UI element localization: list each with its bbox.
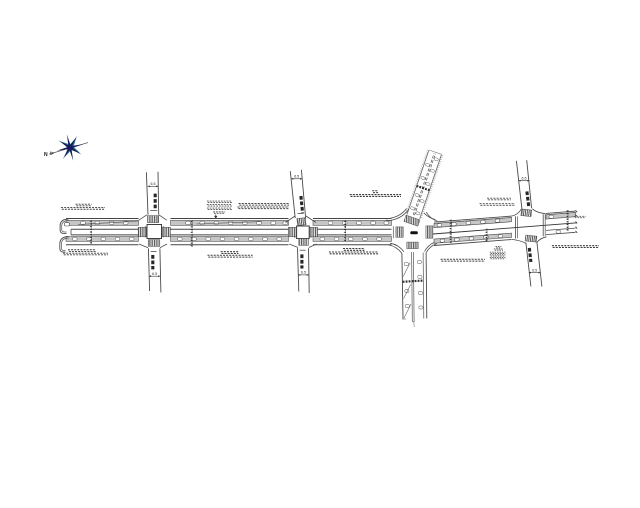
svg-text:6.5: 6.5 (294, 175, 299, 179)
svg-text:6.5: 6.5 (152, 272, 157, 276)
svg-text:6.5: 6.5 (301, 271, 306, 275)
svg-text:6.5: 6.5 (151, 182, 156, 186)
svg-text:6.5: 6.5 (532, 268, 537, 272)
svg-text:6.5: 6.5 (522, 177, 527, 181)
svg-text:N: N (44, 152, 48, 158)
